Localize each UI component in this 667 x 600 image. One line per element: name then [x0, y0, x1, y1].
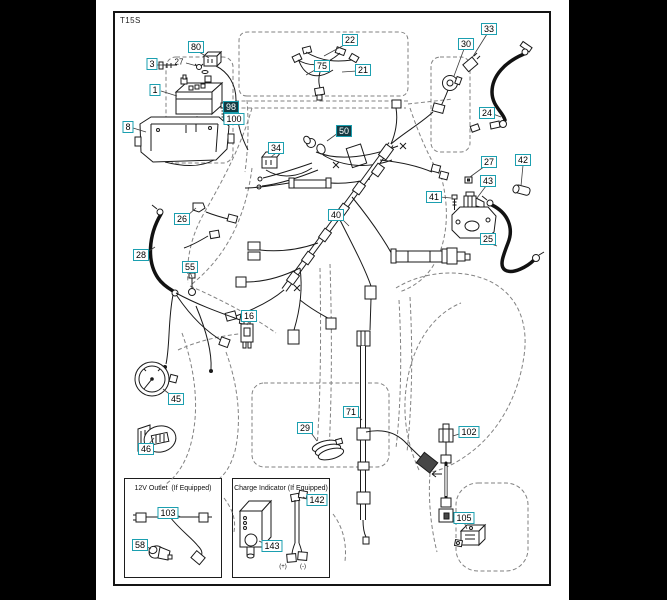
plain-label-2: (-)	[300, 564, 306, 570]
callout-98-4: 98	[223, 101, 239, 113]
callout-55-21: 55	[182, 261, 198, 273]
callout-1-2: 1	[149, 84, 160, 96]
sheet-code-label: T15S	[120, 16, 141, 25]
callout-103-30: 103	[157, 507, 178, 519]
callout-21-8: 21	[355, 64, 371, 76]
callout-33-10: 33	[481, 23, 497, 35]
callout-102-28: 102	[458, 426, 479, 438]
callout-42-15: 42	[515, 154, 531, 166]
callout-43-16: 43	[480, 175, 496, 187]
plain-label-1: (+)	[279, 564, 287, 570]
callout-58-31: 58	[132, 539, 148, 551]
callout-142-32: 142	[306, 494, 327, 506]
callout-30-9: 30	[458, 38, 474, 50]
callout-22-6: 22	[342, 34, 358, 46]
callout-3-1: 3	[146, 58, 157, 70]
callout-28-20: 28	[133, 249, 149, 261]
callout-24-11: 24	[479, 107, 495, 119]
callout-80-0: 80	[188, 41, 204, 53]
callout-41-17: 41	[426, 191, 442, 203]
callout-34-12: 34	[268, 142, 284, 154]
callout-8-3: 8	[122, 121, 133, 133]
diagram-screenshot-root: T15S 12V Outlet (If Equipped) Charge Ind…	[0, 0, 667, 600]
inset-12v-outlet-box: 12V Outlet (If Equipped)	[124, 478, 222, 578]
callout-105-29: 105	[453, 512, 474, 524]
callout-40-22: 40	[328, 209, 344, 221]
callout-16-23: 16	[241, 310, 257, 322]
callout-75-7: 75	[314, 60, 330, 72]
inset-charge-indicator-title: Charge Indicator (If Equipped)	[233, 485, 329, 492]
plain-label-0: 27	[175, 58, 184, 67]
callout-26-19: 26	[174, 213, 190, 225]
callout-45-24: 45	[168, 393, 184, 405]
callout-25-18: 25	[480, 233, 496, 245]
callout-100-5: 100	[223, 113, 244, 125]
callout-143-33: 143	[261, 540, 282, 552]
callout-71-27: 71	[343, 406, 359, 418]
inset-charge-indicator-box: Charge Indicator (If Equipped)	[232, 478, 330, 578]
callout-46-25: 46	[138, 443, 154, 455]
callout-27-14: 27	[481, 156, 497, 168]
callout-50-13: 50	[336, 125, 352, 137]
callout-29-26: 29	[297, 422, 313, 434]
inset-12v-outlet-title: 12V Outlet (If Equipped)	[125, 485, 221, 492]
